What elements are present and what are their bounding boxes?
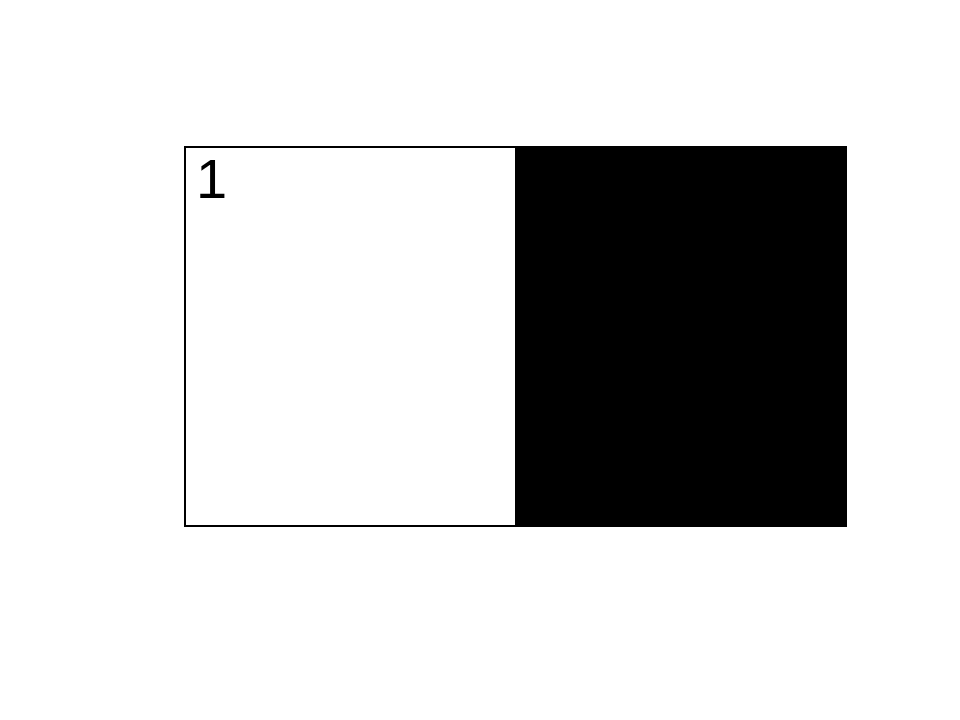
split-rectangle: 1: [184, 146, 847, 527]
white-panel: [186, 148, 515, 525]
black-panel: [515, 148, 845, 525]
page-canvas: 1: [0, 0, 960, 720]
figure-number-label: 1: [196, 150, 227, 208]
